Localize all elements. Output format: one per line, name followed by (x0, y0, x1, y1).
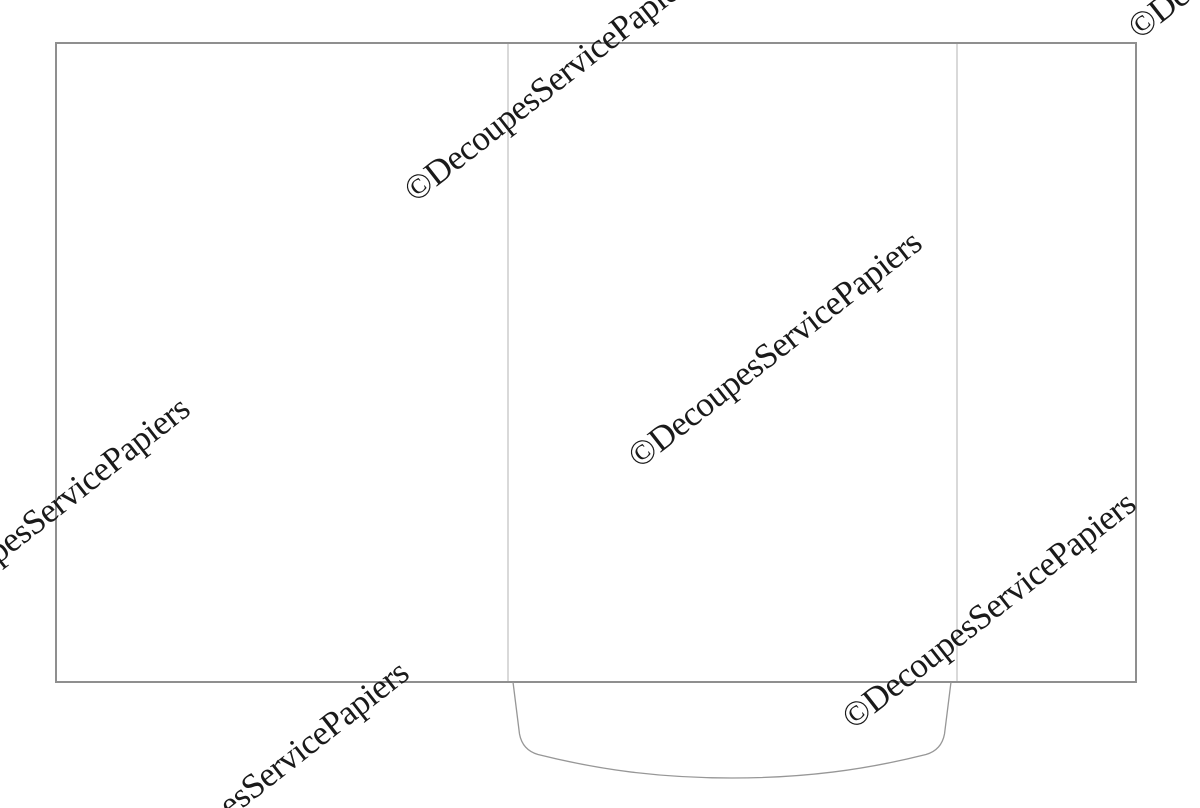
template-outer-outline (56, 43, 1136, 682)
pochette-template-image: ©DecoupesServicePapiers©DecoupesServiceP… (0, 0, 1200, 808)
die-cut-outline-drawing (0, 0, 1200, 808)
bottom-flap-outline (513, 682, 951, 778)
